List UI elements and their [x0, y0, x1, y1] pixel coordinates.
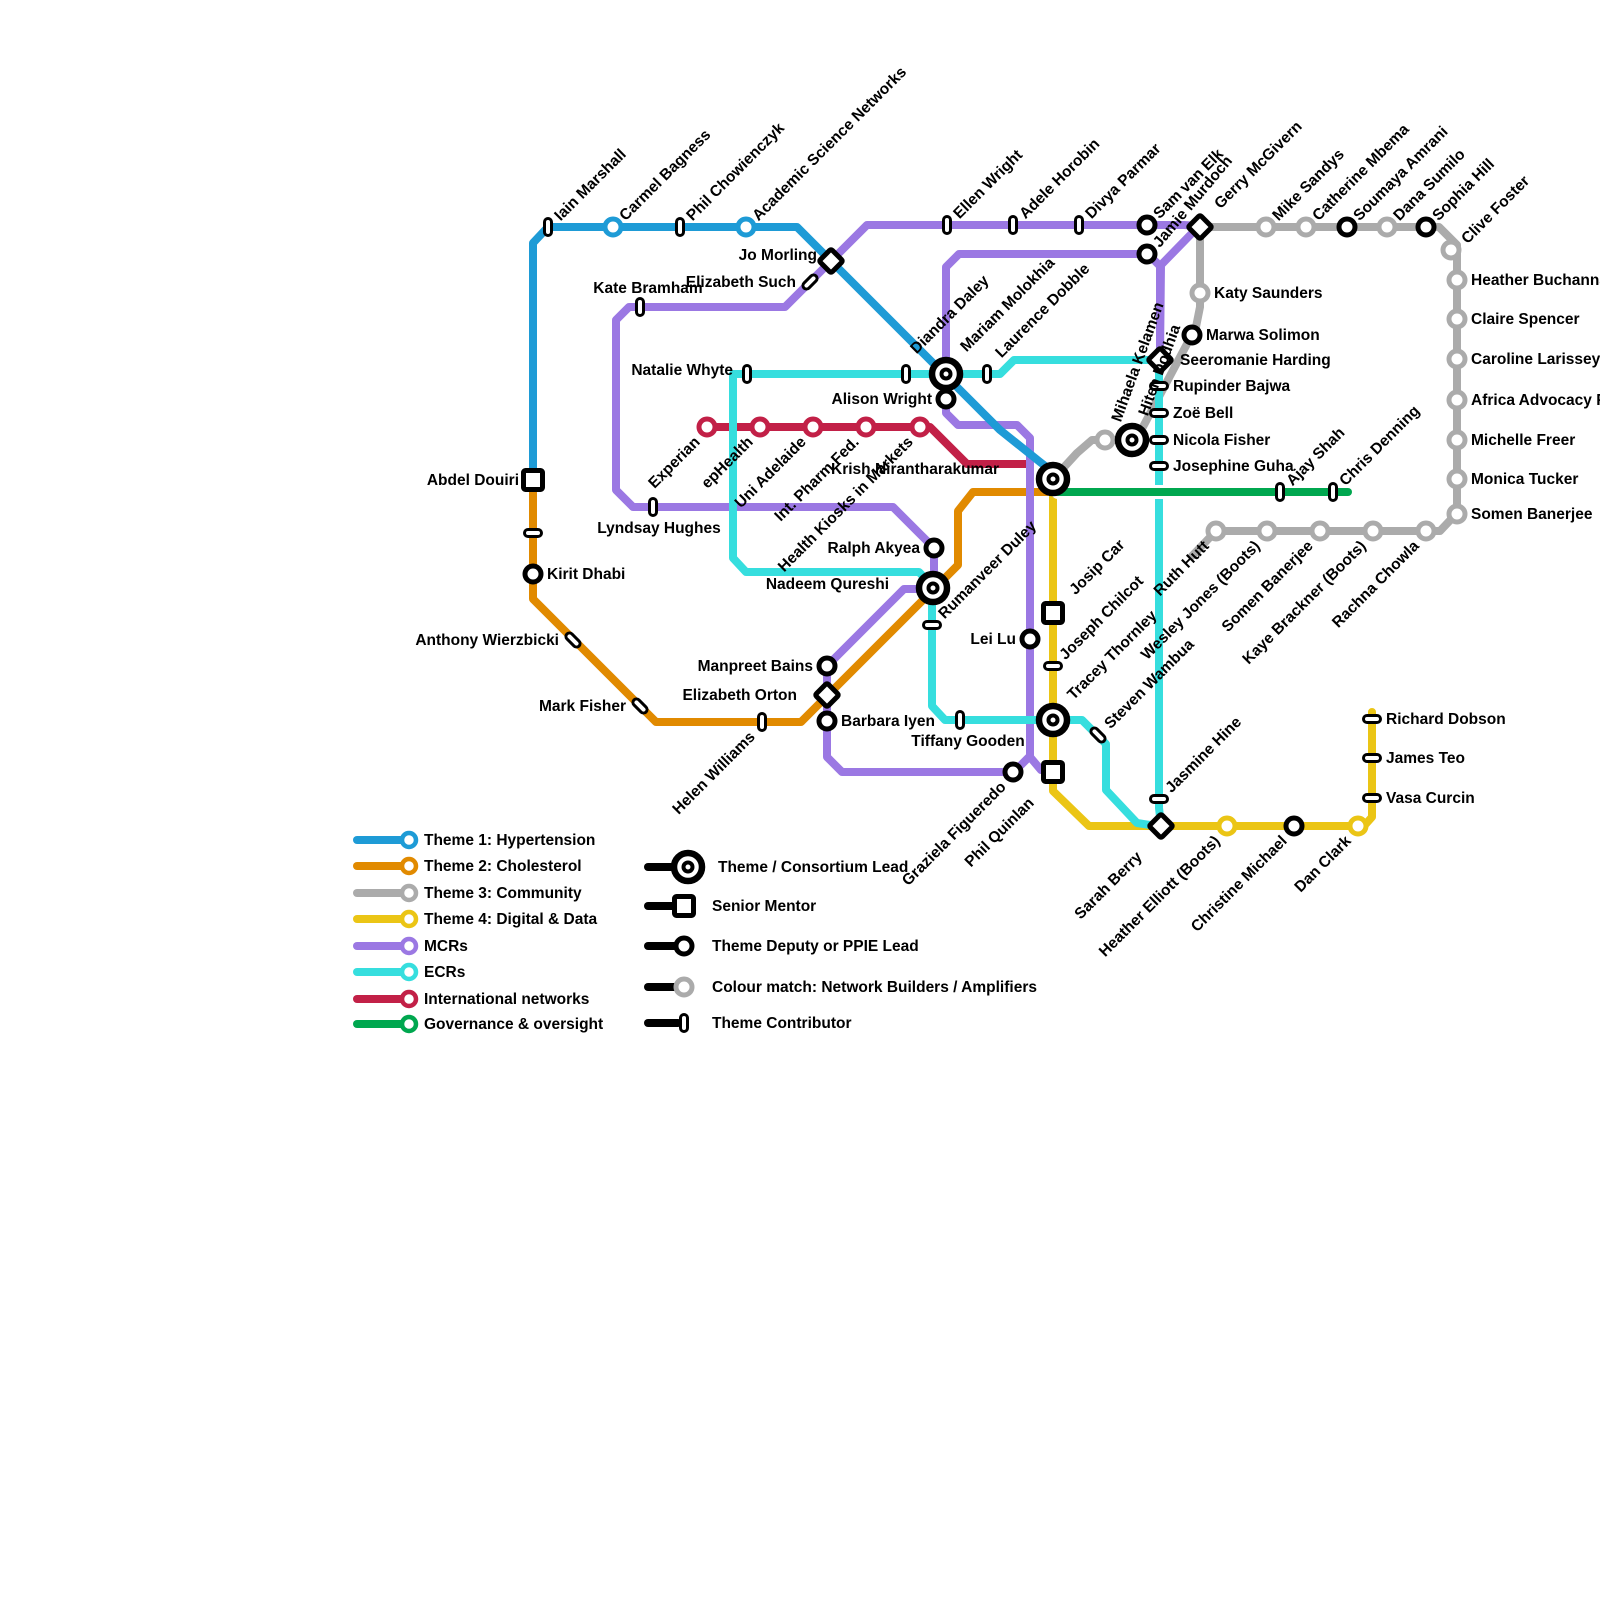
ring-marker-icon — [1192, 285, 1208, 301]
station-michelle-freer — [1449, 432, 1465, 448]
station-joseph-chilcot — [1045, 663, 1062, 670]
station-tiffany-gooden — [957, 712, 964, 729]
station-claire-spencer — [1449, 311, 1465, 327]
dot-marker-icon — [1005, 764, 1021, 780]
station-mariam-molokhia — [932, 360, 960, 388]
ring-marker-icon — [605, 219, 621, 235]
station-wesley-jones-boots — [1259, 523, 1275, 539]
station-laurence-dobble — [984, 366, 991, 383]
lead-marker-inner-icon — [1128, 436, 1137, 445]
ring-marker-icon — [1449, 392, 1465, 408]
station-dan-clark — [1350, 818, 1366, 834]
ring-marker-icon — [1449, 506, 1465, 522]
station-ellen-wright — [944, 217, 951, 234]
station-label-claire-spencer: Claire Spencer — [1471, 311, 1580, 328]
legend-line-label: Governance & oversight — [424, 1016, 603, 1033]
legend-marker-label: Colour match: Network Builders / Amplifi… — [712, 979, 1037, 996]
tick-marker-icon — [1364, 716, 1381, 723]
tick-marker-icon — [957, 712, 964, 729]
station-james-teo — [1364, 755, 1381, 762]
ring-marker-icon — [699, 419, 715, 435]
tick-marker-icon — [545, 219, 552, 236]
station-label-kirit-dhabi: Kirit Dhabi — [547, 566, 625, 583]
station-ephealth — [752, 419, 768, 435]
tick-marker-icon — [677, 219, 684, 236]
dot-marker-icon — [819, 713, 835, 729]
station-tracey-thornley — [1039, 706, 1067, 734]
station-kaye-brackner-boots — [1365, 523, 1381, 539]
tick-marker-icon — [944, 217, 951, 234]
station-label-tiffany-gooden: Tiffany Gooden — [911, 733, 1024, 750]
station-alison-wright — [938, 391, 954, 407]
station-ajay-shah — [1277, 484, 1284, 501]
station-christine-michael — [1286, 818, 1302, 834]
tick-marker-icon — [1277, 484, 1284, 501]
station-nadeem-qureshi — [919, 574, 947, 602]
station-heather-elliott-boots — [1219, 818, 1235, 834]
station-label-vasa-curcin: Vasa Curcin — [1386, 790, 1475, 807]
station-label-rupinder-bajwa: Rupinder Bajwa — [1173, 378, 1291, 395]
legend-marker-item-theme-deputy-or-ppie-lead: Theme Deputy or PPIE Lead — [648, 938, 919, 955]
tick-marker-icon — [984, 366, 991, 383]
dot-marker-icon — [676, 938, 692, 954]
legend-line-label: Theme 1: Hypertension — [424, 832, 595, 849]
tick-marker-icon — [637, 299, 644, 316]
station-mike-sandys — [1258, 219, 1274, 235]
legend-marker-item-senior-mentor: Senior Mentor — [648, 897, 816, 916]
station-natalie-whyte — [744, 366, 751, 383]
ring-marker-icon — [1449, 311, 1465, 327]
station-label-zo-bell: Zoë Bell — [1173, 405, 1233, 422]
legend-line-end-icon — [402, 992, 416, 1006]
station-kate-bramham — [637, 299, 644, 316]
square-marker-icon — [675, 897, 694, 916]
station-iain-marshall — [545, 219, 552, 236]
legend-line-end-icon — [402, 912, 416, 926]
station-adele-horobin — [1010, 217, 1017, 234]
station-chris-denning — [1330, 484, 1337, 501]
tick-marker-icon — [759, 714, 766, 731]
station-graziela-figueredo — [1005, 764, 1021, 780]
station-lei-lu — [1022, 631, 1038, 647]
station-josephine-guha — [1151, 463, 1168, 470]
station-label-anthony-wierzbicki: Anthony Wierzbicki — [415, 632, 559, 649]
station-phil-chowienczyk — [677, 219, 684, 236]
ring-marker-icon — [1449, 432, 1465, 448]
station-rumanveer-duley — [924, 622, 941, 629]
station-label-manpreet-bains: Manpreet Bains — [698, 658, 813, 675]
station-sam-van-elk — [1139, 217, 1155, 233]
station-label-abdel-douiri: Abdel Douiri — [427, 472, 519, 489]
station-dana-sumilo — [1379, 219, 1395, 235]
ring-marker-icon — [1418, 523, 1434, 539]
station-sophia-hill — [1418, 219, 1434, 235]
station-label-marwa-solimon: Marwa Solimon — [1206, 327, 1320, 344]
station-label-natalie-whyte: Natalie Whyte — [631, 362, 733, 379]
station-kirit-dhabi — [525, 566, 541, 582]
legend-line-label: MCRs — [424, 938, 468, 955]
station-label-elizabeth-orton: Elizabeth Orton — [682, 687, 797, 704]
ring-marker-icon — [912, 419, 928, 435]
station-carmel-bagness — [605, 219, 621, 235]
legend-marker-label: Senior Mentor — [712, 898, 816, 915]
legend-line-label: International networks — [424, 991, 589, 1008]
legend-line-label: Theme 3: Community — [424, 885, 582, 902]
station-label-elizabeth-such: Elizabeth Such — [686, 274, 796, 291]
station-jamie-murdoch — [1139, 246, 1155, 262]
tick-marker-icon — [744, 366, 751, 383]
network-map-svg: Iain MarshallCarmel BagnessPhil Chowienc… — [0, 0, 1600, 1600]
station-caroline-larissey — [1449, 351, 1465, 367]
station-label-alison-wright: Alison Wright — [832, 391, 932, 408]
tick-marker-icon — [1151, 796, 1168, 803]
station-label-michelle-freer: Michelle Freer — [1471, 432, 1575, 449]
tick-marker-icon — [1151, 437, 1168, 444]
station-diandra-daley — [903, 366, 910, 383]
tick-marker-icon — [681, 1015, 688, 1032]
tick-marker-icon — [1330, 484, 1337, 501]
station-soumaya-amrani — [1339, 219, 1355, 235]
legend-line-end-icon — [402, 1017, 416, 1031]
legend-line-end-icon — [402, 886, 416, 900]
station-uni-adelaide — [805, 419, 821, 435]
legend-line-end-icon — [402, 965, 416, 979]
tick-marker-icon — [924, 622, 941, 629]
station-somen-banerjee — [1449, 506, 1465, 522]
station-label-josephine-guha: Josephine Guha — [1173, 458, 1294, 475]
station-ralph-akyea — [926, 540, 942, 556]
station-experian — [699, 419, 715, 435]
station-label-lei-lu: Lei Lu — [970, 631, 1016, 648]
station-label-nadeem-qureshi: Nadeem Qureshi — [766, 576, 889, 593]
ring-marker-icon — [676, 979, 692, 995]
tick-marker-icon — [650, 499, 657, 516]
station-label-nicola-fisher: Nicola Fisher — [1173, 432, 1270, 449]
legend-line-label: ECRs — [424, 964, 465, 981]
station-jasmine-hine — [1151, 796, 1168, 803]
station-lyndsay-hughes — [650, 499, 657, 516]
station-divya-parmar — [1076, 217, 1083, 234]
legend-marker-label: Theme Deputy or PPIE Lead — [712, 938, 919, 955]
station-heather-buchannan — [1449, 272, 1465, 288]
station-label-katy-saunders: Katy Saunders — [1214, 285, 1323, 302]
dot-marker-icon — [938, 391, 954, 407]
station-hiten-dodhia — [1118, 426, 1146, 454]
ring-marker-icon — [1219, 818, 1235, 834]
ring-marker-icon — [858, 419, 874, 435]
dot-marker-icon — [1286, 818, 1302, 834]
station-katy-saunders — [1192, 285, 1208, 301]
station-station — [525, 530, 542, 537]
ring-marker-icon — [1449, 471, 1465, 487]
station-abdel-douiri — [524, 471, 543, 490]
station-label-monica-tucker: Monica Tucker — [1471, 471, 1578, 488]
legend-line-end-icon — [402, 859, 416, 873]
lead-marker-inner-icon — [1049, 716, 1058, 725]
station-label-mark-fisher: Mark Fisher — [539, 698, 626, 715]
station-marwa-solimon — [1184, 327, 1200, 343]
dot-marker-icon — [1184, 327, 1200, 343]
legend-line-label: Theme 4: Digital & Data — [424, 911, 597, 928]
tick-marker-icon — [903, 366, 910, 383]
ring-marker-icon — [1259, 523, 1275, 539]
station-health-kiosks-in-markets — [912, 419, 928, 435]
tick-marker-icon — [1364, 795, 1381, 802]
station-academic-science-networks — [738, 219, 754, 235]
square-marker-icon — [1044, 604, 1063, 623]
station-label-jo-morling: Jo Morling — [739, 247, 817, 264]
station-label-africa-advocacy-foundation: Africa Advocacy Foundation — [1471, 392, 1600, 409]
station-krish-nirantharakumar — [1039, 465, 1067, 493]
lead-marker-inner-icon — [684, 863, 693, 872]
station-label-somen-banerjee: Somen Banerjee — [1471, 506, 1593, 523]
ring-marker-icon — [1258, 219, 1274, 235]
dot-marker-icon — [1139, 217, 1155, 233]
station-vasa-curcin — [1364, 795, 1381, 802]
legend-line-end-icon — [402, 833, 416, 847]
station-richard-dobson — [1364, 716, 1381, 723]
lead-marker-inner-icon — [1049, 475, 1058, 484]
station-label-barbara-iyen: Barbara Iyen — [841, 713, 935, 730]
ring-marker-icon — [1208, 523, 1224, 539]
dot-marker-icon — [1418, 219, 1434, 235]
station-label-lyndsay-hughes: Lyndsay Hughes — [597, 520, 720, 537]
ring-marker-icon — [1097, 432, 1113, 448]
dot-marker-icon — [1139, 246, 1155, 262]
station-monica-tucker — [1449, 471, 1465, 487]
tick-marker-icon — [1364, 755, 1381, 762]
station-josip-car — [1044, 604, 1063, 623]
station-label-heather-buchannan: Heather Buchannan — [1471, 272, 1600, 289]
station-label-ralph-akyea: Ralph Akyea — [828, 540, 921, 557]
station-nicola-fisher — [1151, 437, 1168, 444]
station-somen-banerjee — [1312, 523, 1328, 539]
station-phil-quinlan — [1044, 763, 1063, 782]
legend-marker-symbol — [681, 1015, 688, 1032]
station-africa-advocacy-foundation — [1449, 392, 1465, 408]
station-helen-williams — [759, 714, 766, 731]
ring-marker-icon — [1298, 219, 1314, 235]
station-catherine-mbema — [1298, 219, 1314, 235]
ring-marker-icon — [1365, 523, 1381, 539]
tick-marker-icon — [1076, 217, 1083, 234]
ring-marker-icon — [752, 419, 768, 435]
station-label-james-teo: James Teo — [1386, 750, 1465, 767]
tick-marker-icon — [1010, 217, 1017, 234]
ring-marker-icon — [738, 219, 754, 235]
legend-marker-symbol — [674, 853, 702, 881]
station-int-pharm-fed — [858, 419, 874, 435]
tick-marker-icon — [1045, 663, 1062, 670]
metro-map-canvas: Iain MarshallCarmel BagnessPhil Chowienc… — [0, 0, 1600, 1600]
tick-marker-icon — [525, 530, 542, 537]
ring-marker-icon — [1379, 219, 1395, 235]
legend-marker-symbol — [675, 897, 694, 916]
map-background — [0, 0, 1600, 1600]
station-label-seeromanie-harding: Seeromanie Harding — [1180, 352, 1331, 369]
legend-line-label: Theme 2: Cholesterol — [424, 858, 582, 875]
lead-marker-inner-icon — [929, 584, 938, 593]
square-marker-icon — [1044, 763, 1063, 782]
ring-marker-icon — [1312, 523, 1328, 539]
station-clive-foster — [1443, 242, 1459, 258]
dot-marker-icon — [1022, 631, 1038, 647]
ring-marker-icon — [1449, 272, 1465, 288]
legend-marker-symbol — [676, 979, 692, 995]
dot-marker-icon — [1339, 219, 1355, 235]
legend-marker-symbol — [676, 938, 692, 954]
lead-marker-inner-icon — [942, 370, 951, 379]
station-label-krish-nirantharakumar: Krish Nirantharakumar — [831, 461, 999, 478]
legend-marker-label: Theme / Consortium Lead — [718, 859, 908, 876]
tick-marker-icon — [1151, 463, 1168, 470]
legend-marker-label: Theme Contributor — [712, 1015, 852, 1032]
ring-marker-icon — [1443, 242, 1459, 258]
ring-marker-icon — [1350, 818, 1366, 834]
station-ruth-hutt — [1208, 523, 1224, 539]
dot-marker-icon — [819, 658, 835, 674]
station-manpreet-bains — [819, 658, 835, 674]
legend-line-end-icon — [402, 939, 416, 953]
dot-marker-icon — [926, 540, 942, 556]
square-marker-icon — [524, 471, 543, 490]
ring-marker-icon — [1449, 351, 1465, 367]
station-barbara-iyen — [819, 713, 835, 729]
station-mihaela-kelamen — [1097, 432, 1113, 448]
ring-marker-icon — [805, 419, 821, 435]
station-label-caroline-larissey: Caroline Larissey — [1471, 351, 1600, 368]
dot-marker-icon — [525, 566, 541, 582]
station-rachna-chowla — [1418, 523, 1434, 539]
station-label-richard-dobson: Richard Dobson — [1386, 711, 1506, 728]
